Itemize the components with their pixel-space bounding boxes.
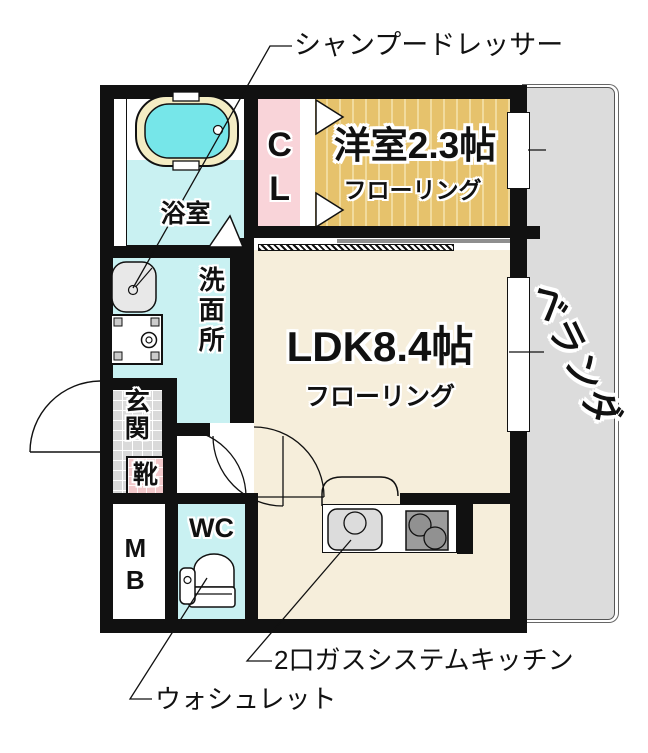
wall-shoe-bottom: [100, 493, 258, 504]
entrance-label: 玄関: [122, 388, 148, 442]
bathroom-label: 浴室: [127, 200, 244, 228]
pipe-space: [113, 99, 127, 246]
wall-bath-closet: [244, 99, 258, 227]
floor-plan: ベランダ: [0, 0, 648, 753]
wall-top: [100, 85, 527, 99]
meter-box-label: MB: [121, 533, 148, 597]
callout-washlet: ウォシュレット: [155, 686, 336, 713]
callout-gas-kitchen: 2口ガスシステムキッチン: [274, 647, 574, 674]
room-ldk: [254, 238, 510, 619]
shoe-cabinet-label: 靴: [126, 458, 165, 493]
western-room-label: 洋室2.3帖: [315, 122, 515, 170]
wall-mb-right: [165, 504, 178, 619]
callout-shampoo-dresser: シャンプードレッサー: [294, 31, 563, 59]
entrance-door-arc: [30, 381, 100, 452]
kitchen-counter: [322, 504, 457, 553]
ldk-label: LDK8.4帖: [268, 322, 492, 372]
sliding-door-panel: [337, 239, 510, 243]
wall-kitchen-right: [457, 504, 473, 554]
western-room-floor-label: フローリング: [315, 176, 510, 204]
wall-bottom: [100, 619, 527, 633]
sliding-door-hatch-panel: [258, 244, 454, 251]
wall-left: [100, 85, 113, 633]
washroom-label: 洗面所: [196, 266, 223, 356]
wall-washroom-right: [230, 238, 254, 423]
wall-kitchen-top: [400, 493, 510, 504]
wall-bath-bottom: [112, 245, 244, 258]
wc-label: WC: [178, 512, 245, 544]
ldk-floor-label: フローリング: [268, 382, 492, 412]
closet-label: CL: [261, 126, 297, 214]
wall-wc-right: [245, 493, 258, 619]
